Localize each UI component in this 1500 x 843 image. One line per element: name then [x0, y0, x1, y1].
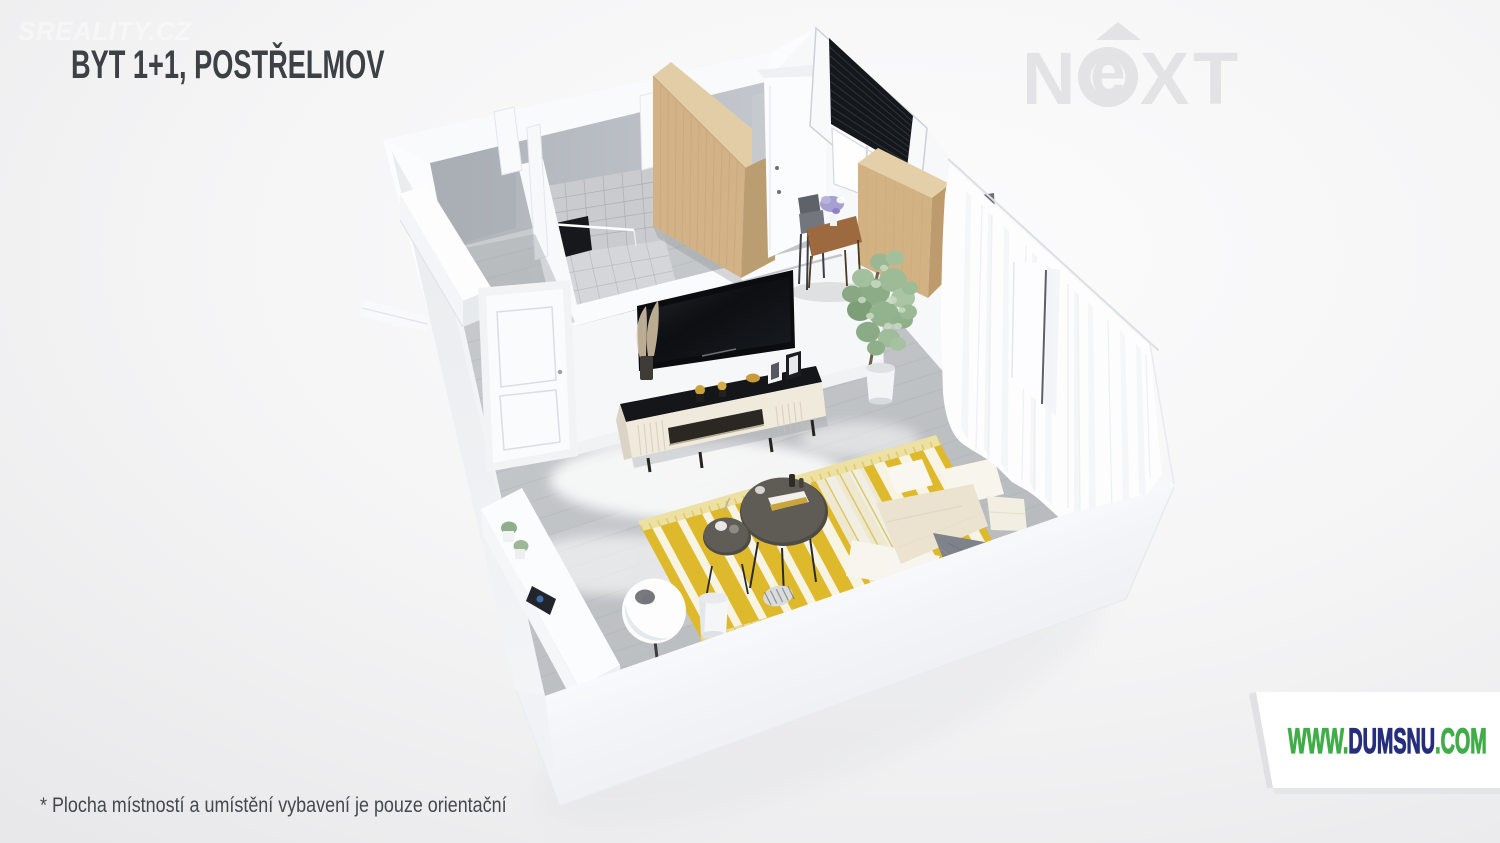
svg-text:WWW.DUMSNU.COM: WWW.DUMSNU.COM: [1288, 722, 1487, 761]
svg-text:SREALITY.CZ: SREALITY.CZ: [18, 16, 192, 46]
svg-text:e: e: [1090, 36, 1126, 108]
svg-text:BYT 1+1, POSTŘELMOV: BYT 1+1, POSTŘELMOV: [71, 41, 385, 88]
svg-text:T: T: [1193, 37, 1238, 120]
svg-text:* Plocha místností a umístění: * Plocha místností a umístění vybavení j…: [40, 794, 507, 818]
svg-text:N: N: [1022, 37, 1075, 120]
svg-text:X: X: [1140, 37, 1189, 120]
